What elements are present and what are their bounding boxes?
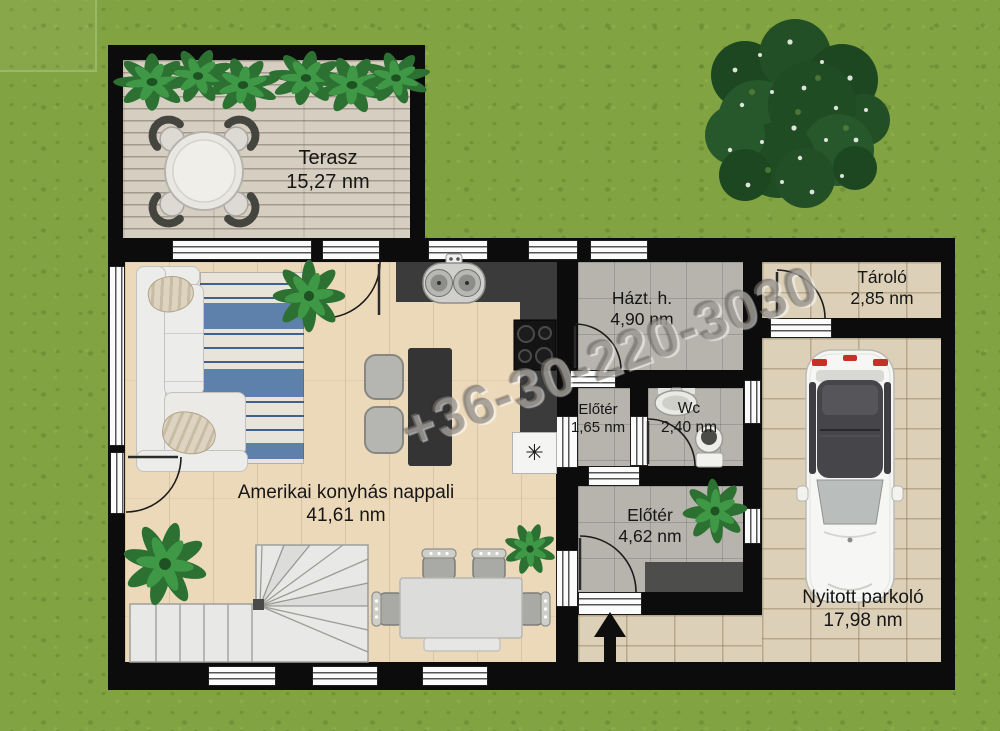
room-label-wc: Wc 2,40 nm <box>661 400 717 438</box>
room-label-parkolo: Nyitott parkoló 17,98 nm <box>802 586 923 632</box>
window-entry-east <box>744 508 761 544</box>
window-utility <box>590 240 648 260</box>
door-living-west <box>110 452 125 514</box>
tree <box>705 19 890 208</box>
room-label-nappali: Amerikai konyhás nappali 41,61 nm <box>238 481 455 527</box>
snowflake-icon: ✳ <box>525 440 543 466</box>
wall-wc-south <box>556 466 762 486</box>
room-name: Terasz <box>286 146 369 170</box>
floor-plan-canvas: ✳ <box>0 0 1000 731</box>
room-area: 2,85 nm <box>850 288 913 309</box>
room-name: Amerikai konyhás nappali <box>238 481 455 504</box>
window-terrace-slider <box>172 240 312 260</box>
room-name: Tároló <box>850 267 913 288</box>
house-wall-right <box>941 238 955 690</box>
room-name: Előtér <box>571 401 625 419</box>
terrace-wall-right <box>410 45 425 240</box>
door-terrace-glazed <box>322 240 380 260</box>
room-name: Nyitott parkoló <box>802 586 923 609</box>
entry-cabinet-mat <box>645 562 743 592</box>
room-area: 17,98 nm <box>802 609 923 632</box>
doorway-living-entry <box>556 550 578 607</box>
room-label-eloter-nagy: Előtér 4,62 nm <box>618 505 681 548</box>
room-area: 1,65 nm <box>571 419 625 437</box>
room-label-terasz: Terasz 15,27 nm <box>286 146 369 195</box>
grass-texture-seam <box>0 0 97 72</box>
entrance-walkway-paving <box>578 615 762 662</box>
room-label-tarolo: Tároló 2,85 nm <box>850 267 913 310</box>
room-label-eloter-kis: Előtér 1,65 nm <box>571 401 625 438</box>
room-area: 41,61 nm <box>238 504 455 527</box>
window-south-2 <box>312 666 378 686</box>
window-living-west <box>109 266 125 446</box>
room-area: 15,27 nm <box>286 170 369 194</box>
window-kitchen-2 <box>528 240 578 260</box>
room-name: Wc <box>661 400 717 419</box>
terrace-wall-left <box>108 45 123 240</box>
doorway-wc <box>630 416 648 466</box>
room-name: Előtér <box>618 505 681 526</box>
freezer-appliance: ✳ <box>512 432 557 474</box>
window-south-3 <box>422 666 488 686</box>
terrace-wall-top <box>108 45 425 60</box>
window-south-1 <box>208 666 276 686</box>
doorway-foyer-entry <box>588 466 640 486</box>
room-area: 4,62 nm <box>618 526 681 547</box>
window-wc-east <box>744 380 761 424</box>
bar-stool <box>364 354 404 400</box>
entrance-door <box>578 592 642 615</box>
room-area: 2,40 nm <box>661 419 717 438</box>
kitchen-counter-north <box>396 262 557 302</box>
window-kitchen-1 <box>428 240 488 260</box>
